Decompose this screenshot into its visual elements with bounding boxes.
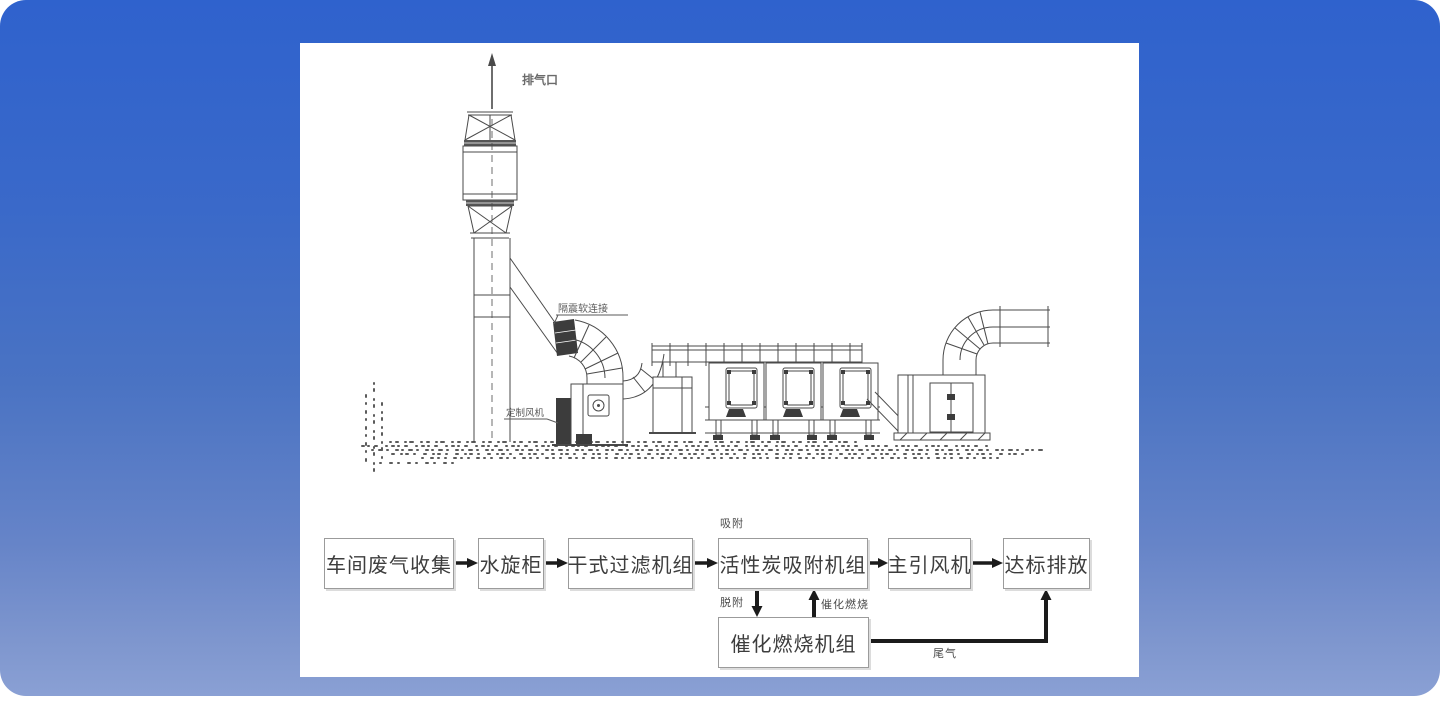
desorb-label: 脱附 bbox=[720, 594, 744, 610]
flow-box-main-draft-fan: 主引风机 bbox=[888, 538, 971, 589]
custom-fan-unit bbox=[552, 384, 628, 445]
flow-box-carbon-adsorption-unit: 活性炭吸附机组 bbox=[718, 538, 868, 589]
custom-fan-label: 定制风机 bbox=[506, 407, 545, 419]
tail-gas-label: 尾气 bbox=[933, 645, 957, 661]
outlet-elbow bbox=[943, 306, 1050, 375]
drawing-labels: 排气口 隔震软连接 定制风机 bbox=[506, 72, 608, 419]
exhaust-stack bbox=[463, 53, 517, 442]
vertical-tank bbox=[649, 362, 696, 433]
flow-box-compliant-discharge: 达标排放 bbox=[1003, 538, 1090, 589]
adsorb-label: 吸附 bbox=[720, 515, 744, 531]
bend-duct bbox=[569, 320, 623, 384]
right-unit bbox=[894, 375, 990, 440]
blue-background: 排气口 隔震软连接 定制风机 bbox=[0, 0, 1440, 696]
flow-box-water-spin-cabinet: 水旋柜 bbox=[478, 538, 544, 589]
flow-box-workshop-collection: 车间废气收集 bbox=[324, 538, 454, 589]
exhaust-outlet-label: 排气口 bbox=[522, 72, 558, 87]
diagram-panel: 排气口 隔震软连接 定制风机 bbox=[300, 43, 1139, 677]
stack-branch-duct bbox=[510, 258, 558, 354]
catalytic-combustion-label: 催化燃烧 bbox=[821, 596, 869, 612]
adsorption-modules bbox=[705, 363, 880, 440]
flex-connector-label: 隔震软连接 bbox=[558, 302, 608, 315]
flow-box-dry-filter-unit: 干式过滤机组 bbox=[568, 538, 693, 589]
flex-connector bbox=[553, 319, 578, 356]
flow-box-catalytic-combustion-unit: 催化燃烧机组 bbox=[718, 617, 869, 668]
